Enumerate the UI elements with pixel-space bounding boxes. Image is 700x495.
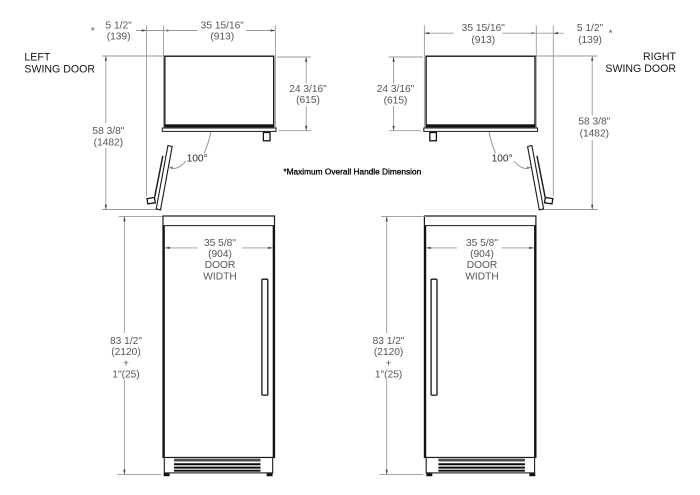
svg-text:1"(25): 1"(25) [112,370,139,381]
svg-text:58 3/8": 58 3/8" [92,126,124,137]
svg-text:(904): (904) [470,249,494,260]
svg-text:(913): (913) [471,35,495,46]
svg-text:LEFT: LEFT [24,52,50,64]
svg-text:35 15/16": 35 15/16" [462,23,506,34]
svg-text:WIDTH: WIDTH [203,271,236,282]
svg-text:58 3/8": 58 3/8" [578,117,610,128]
svg-text:35 5/8": 35 5/8" [466,238,498,249]
svg-text:1"(25): 1"(25) [375,370,402,381]
svg-text:+: + [123,358,129,369]
svg-text:5 1/2": 5 1/2" [577,23,604,34]
svg-text:100°: 100° [492,154,513,165]
svg-text:*: * [609,29,613,40]
svg-text:83 1/2": 83 1/2" [373,336,405,347]
svg-text:WIDTH: WIDTH [465,271,498,282]
svg-text:(139): (139) [578,35,602,46]
svg-text:35 15/16": 35 15/16" [201,20,245,31]
svg-text:DOOR: DOOR [467,260,498,271]
svg-text:35 5/8": 35 5/8" [204,238,236,249]
svg-text:5 1/2": 5 1/2" [105,20,132,31]
svg-text:(2120): (2120) [374,347,403,358]
svg-text:100°: 100° [187,154,208,165]
svg-text:24 3/16": 24 3/16" [377,84,415,95]
svg-text:(913): (913) [210,32,234,43]
svg-text:SWING DOOR: SWING DOOR [605,63,676,75]
svg-text:83 1/2": 83 1/2" [110,336,142,347]
svg-text:(615): (615) [384,95,408,106]
svg-text:*Maximum Overall Handle Dimens: *Maximum Overall Handle Dimension [283,166,421,176]
svg-text:(615): (615) [296,95,320,106]
svg-text:SWING DOOR: SWING DOOR [24,64,95,76]
svg-text:(1482): (1482) [94,137,123,148]
svg-text:RIGHT: RIGHT [643,51,676,63]
svg-text:+: + [386,358,392,369]
svg-text:DOOR: DOOR [205,260,236,271]
svg-text:(139): (139) [107,32,131,43]
svg-text:(1482): (1482) [580,128,609,139]
svg-text:24 3/16": 24 3/16" [289,84,327,95]
svg-text:*: * [91,26,95,37]
svg-text:(2120): (2120) [111,347,140,358]
svg-text:(904): (904) [208,249,232,260]
